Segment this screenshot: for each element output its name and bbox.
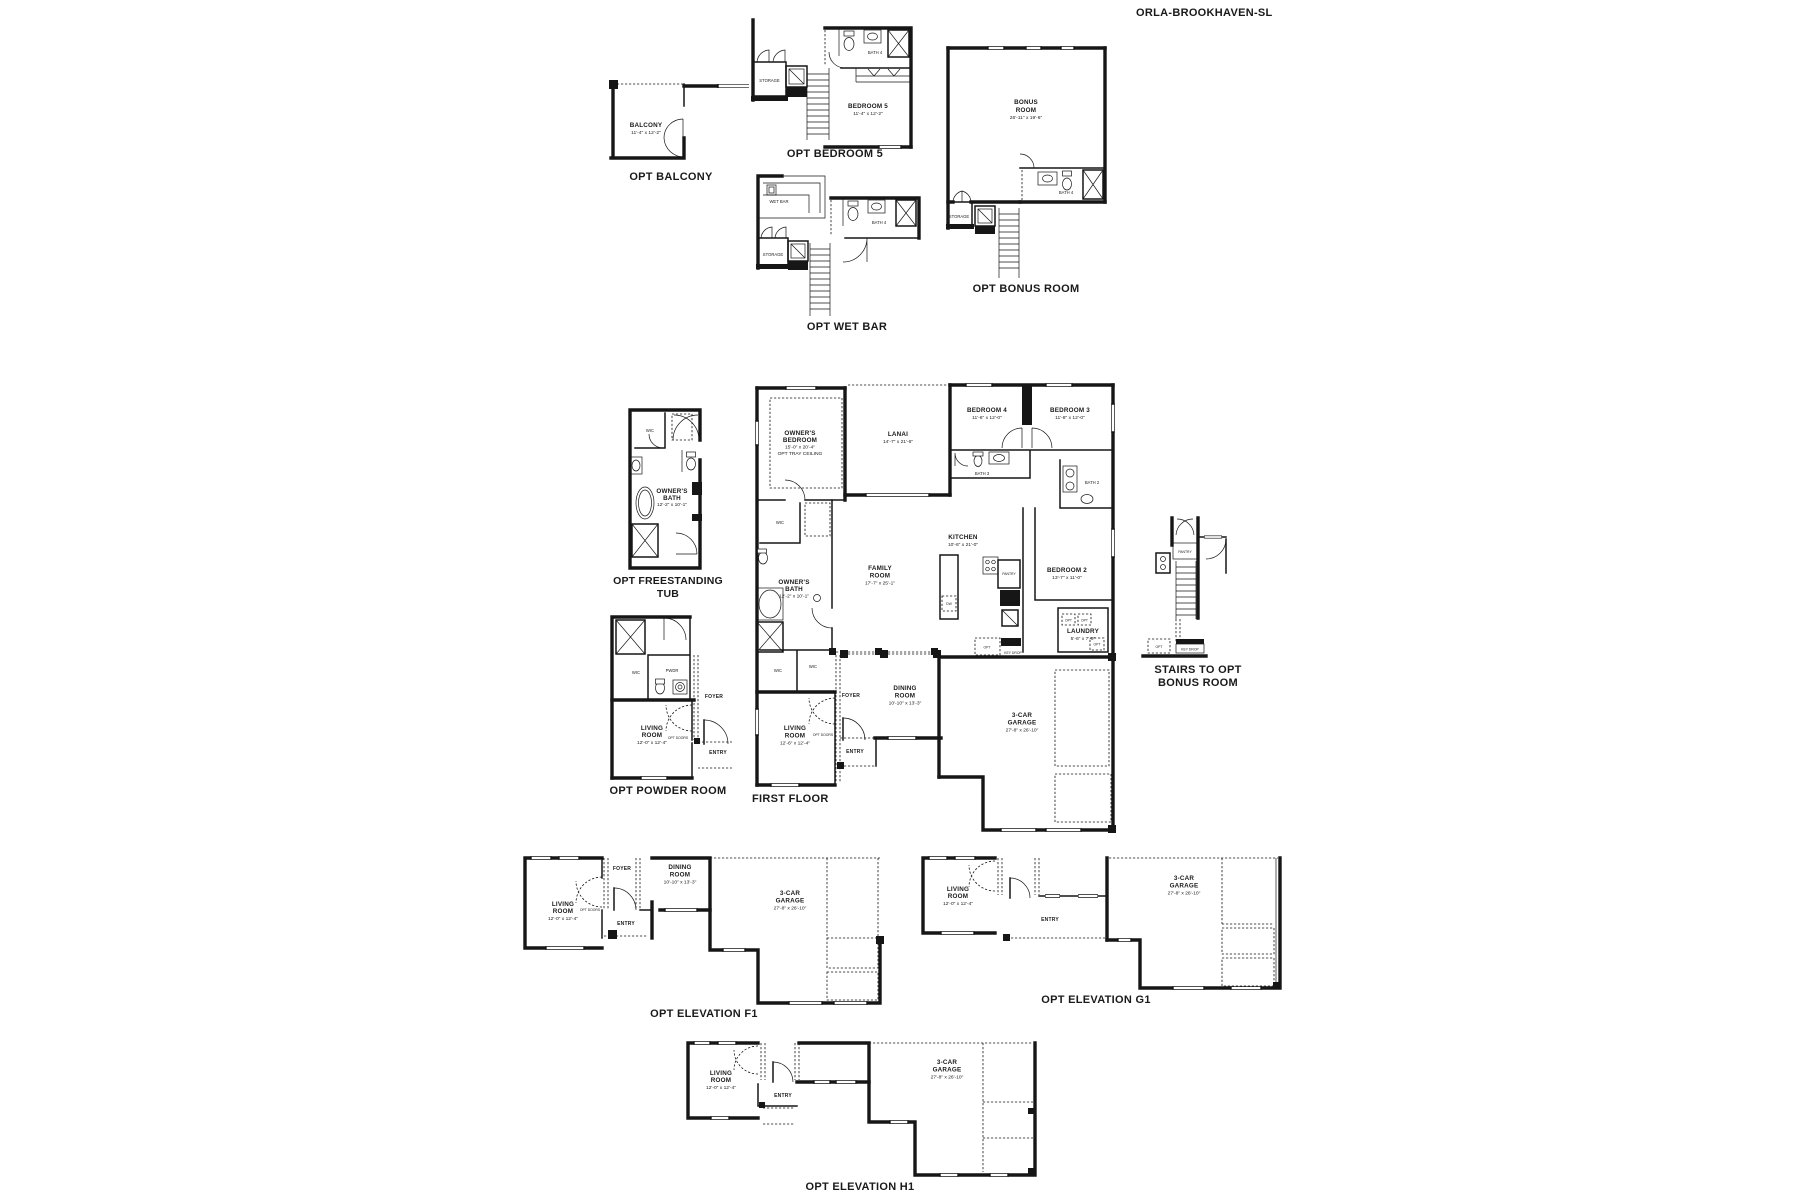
ff-lanai-label: LANAI — [888, 431, 908, 438]
g1-living-dims: 12'-0" x 12'-4" — [943, 901, 973, 907]
ff-bedroom3-label: BEDROOM 3 — [1050, 407, 1090, 414]
elev-f1-walls — [525, 857, 884, 1005]
powder-opt-doors-label: OPT DOORS — [668, 736, 689, 740]
bonus-room-label-1: BONUS — [1014, 99, 1038, 106]
ff-garage-label-1: 3-CAR — [1012, 712, 1032, 719]
ff-owners-bedroom-note: OPT TRAY CEILING — [778, 451, 823, 457]
ff-bedroom3-dims: 11'-8" x 12'-0" — [1055, 415, 1085, 421]
ff-owners-bedroom-label-1: OWNER'S — [784, 430, 815, 437]
elev-h1-caption: OPT ELEVATION H1 — [806, 1181, 915, 1193]
powder-living-label-2: ROOM — [642, 732, 662, 739]
ff-kitchen-label: KITCHEN — [948, 534, 978, 541]
tub-bath-dims: 12'-2" x 10'-1" — [657, 502, 687, 508]
h1-entry-label: ENTRY — [774, 1093, 792, 1099]
bonus-bath-label: BATH 4 — [1059, 190, 1074, 195]
f1-garage-dims: 27'-8" x 26'-10" — [774, 906, 807, 912]
f1-dining-label-1: DINING — [668, 864, 691, 871]
stairs-caption-2: BONUS ROOM — [1158, 677, 1238, 689]
h1-garage-dims: 27'-8" x 26'-10" — [931, 1075, 964, 1081]
h1-living-dims: 12'-0" x 12'-4" — [706, 1085, 736, 1091]
ff-laundry-label: LAUNDRY — [1067, 628, 1100, 635]
powder-wic-label: WIC — [632, 670, 640, 675]
elev-h1-walls — [688, 1042, 1036, 1177]
section-opt-elevation-g1: LIVING ROOM 12'-0" x 12'-4" ENTRY 3-CAR … — [918, 852, 1292, 1012]
ff-bath3-label: BATH 3 — [975, 471, 990, 476]
g1-living-label-1: LIVING — [947, 886, 969, 893]
f1-dining-dims: 10'-10" x 13'-3" — [664, 880, 697, 886]
bedroom5-room-label: BEDROOM 5 — [848, 103, 888, 110]
section-opt-bonus-room: BONUS ROOM 26'-11" x 19'-6" STORAGE BATH… — [945, 42, 1127, 304]
ff-laundry-dims: 5'-6" x 7'-9" — [1071, 636, 1096, 642]
wetbar-label: WET BAR — [769, 199, 788, 204]
g1-living-label-2: ROOM — [948, 893, 968, 900]
h1-living-label-2: ROOM — [711, 1077, 731, 1084]
elev-g1-walls — [923, 857, 1281, 990]
g1-entry-label: ENTRY — [1041, 917, 1059, 923]
section-opt-balcony: BALCONY 11'-4" x 12'-2" OPT BALCONY — [605, 70, 755, 188]
bonus-storage-label: STORAGE — [949, 214, 970, 219]
wetbar-caption: OPT WET BAR — [807, 321, 887, 333]
balcony-caption: OPT BALCONY — [629, 171, 713, 183]
balcony-room-dims: 11'-4" x 12'-2" — [631, 130, 661, 136]
ff-bedroom2-label: BEDROOM 2 — [1047, 567, 1087, 574]
powder-pwdr-label: PWDR — [666, 668, 679, 673]
ff-bedroom4-dims: 11'-6" x 12'-0" — [972, 415, 1002, 421]
section-opt-elevation-f1: LIVING ROOM 12'-0" x 12'-4" OPT DOORS FO… — [518, 850, 900, 1025]
ff-living-dims: 12'-6" x 12'-4" — [780, 741, 810, 747]
ff-bedroom4-label: BEDROOM 4 — [967, 407, 1007, 414]
balcony-room-label: BALCONY — [630, 122, 663, 129]
tub-bath-label-1: OWNER'S — [656, 488, 687, 495]
bedroom5-bath-label: BATH 4 — [868, 50, 883, 55]
stairs-caption-1: STAIRS TO OPT — [1154, 664, 1241, 676]
ff-living-label-2: ROOM — [785, 733, 805, 740]
elev-g1-caption: OPT ELEVATION G1 — [1041, 994, 1151, 1006]
g1-garage-label-1: 3-CAR — [1174, 875, 1194, 882]
powder-caption: OPT POWDER ROOM — [610, 785, 727, 797]
elev-f1-caption: OPT ELEVATION F1 — [650, 1008, 758, 1020]
ff-family-dims: 17'-7" x 25'-1" — [865, 581, 895, 587]
stairs-opt-label: OPT — [1156, 645, 1163, 649]
ff-dw-label: DW — [946, 602, 952, 606]
f1-garage-label-1: 3-CAR — [780, 890, 800, 897]
tub-caption-1: OPT FREESTANDING — [613, 575, 723, 587]
stairs-pantry-label: PANTRY — [1178, 550, 1192, 554]
ff-wic-label-3: WIC — [809, 664, 817, 669]
ff-bedroom2-dims: 13'-7" x 11'-0" — [1052, 575, 1082, 581]
stairs-walls — [1143, 518, 1226, 656]
bedroom5-walls — [751, 20, 911, 148]
ff-wic-label-1: WIC — [776, 520, 784, 525]
f1-opt-doors-label: OPT DOORS — [580, 908, 601, 912]
bonus-caption: OPT BONUS ROOM — [973, 283, 1080, 295]
ff-opt-doors-label: OPT DOORS — [813, 733, 834, 737]
powder-foyer-label: FOYER — [705, 694, 723, 700]
section-opt-wetbar: WET BAR STORAGE BATH 4 OPT WET BAR — [752, 170, 924, 338]
ff-laundry-opt-1: OPT — [1065, 619, 1072, 623]
g1-garage-dims: 27'-8" x 26'-10" — [1168, 891, 1201, 897]
tub-caption-2: TUB — [657, 588, 679, 600]
tub-bath-label-2: BATH — [663, 495, 681, 502]
bonus-room-label-2: ROOM — [1016, 107, 1036, 114]
stairs-key-drop-label: KEY DROP — [1181, 648, 1199, 652]
g1-garage-label-2: GARAGE — [1170, 883, 1199, 890]
ff-laundry-opt-2: OPT — [1081, 619, 1088, 623]
bedroom5-storage-label: STORAGE — [759, 78, 780, 83]
f1-living-label-2: ROOM — [553, 908, 573, 915]
f1-garage-label-2: GARAGE — [776, 898, 805, 905]
wetbar-walls — [756, 176, 919, 316]
ff-kitchen-dims: 10'-6" x 21'-0" — [948, 542, 978, 548]
powder-living-dims: 12'-0" x 12'-4" — [637, 740, 667, 746]
bedroom5-caption: OPT BEDROOM 5 — [787, 148, 883, 160]
ff-owners-bedroom-label-2: BEDROOM — [783, 437, 817, 444]
ff-dining-label-2: ROOM — [895, 693, 915, 700]
ff-owners-bath-label-1: OWNER'S — [778, 579, 809, 586]
ff-pantry-label: PANTRY — [1002, 572, 1016, 576]
first-floor-caption: FIRST FLOOR — [752, 793, 829, 805]
ff-foyer-label: FOYER — [842, 693, 860, 699]
ff-key-drop-label: KEY DROP — [1004, 651, 1022, 655]
ff-owners-bedroom-dims: 15'-0" x 20'-4" — [785, 445, 815, 451]
wetbar-storage-label: STORAGE — [763, 252, 784, 257]
section-opt-bedroom5: STORAGE BATH 4 BEDROOM 5 11'-4" x 12'-2"… — [748, 16, 916, 166]
h1-garage-label-2: GARAGE — [933, 1067, 962, 1074]
section-opt-powder-room: WIC PWDR FOYER LIVING ROOM 12'-0" x 12'-… — [602, 608, 754, 800]
wetbar-bath-label: BATH 4 — [872, 220, 887, 225]
ff-owners-bath-dims: 12'-2" x 10'-1" — [779, 594, 809, 600]
tub-wic-label: WIC — [646, 428, 654, 433]
f1-foyer-label: FOYER — [613, 866, 631, 872]
f1-entry-label: ENTRY — [617, 921, 635, 927]
ff-family-label-1: FAMILY — [868, 565, 892, 572]
ff-dining-dims: 10'-10" x 13'-3" — [889, 701, 922, 707]
bonus-room-dims: 26'-11" x 19'-6" — [1010, 115, 1043, 121]
ff-garage-label-2: GARAGE — [1008, 720, 1037, 727]
ff-opt-label: OPT — [984, 646, 991, 650]
floorplan-sheet: ORLA-BROOKHAVEN-SL BALCONY 11'-4" x 12'-… — [0, 0, 1800, 1200]
ff-lanai-dims: 14'-7" x 21'-6" — [883, 439, 913, 445]
ff-garage-dims: 27'-8" x 26'-10" — [1006, 728, 1039, 734]
f1-living-label-1: LIVING — [552, 901, 574, 908]
ff-entry-label: ENTRY — [846, 749, 864, 755]
bedroom5-room-dims: 11'-4" x 12'-2" — [853, 111, 883, 117]
section-first-floor: OWNER'S BEDROOM 15'-0" x 20'-4" OPT TRAY… — [745, 378, 1143, 846]
section-opt-elevation-h1: LIVING ROOM 12'-0" x 12'-4" ENTRY 3-CAR … — [683, 1038, 1061, 1200]
powder-entry-label: ENTRY — [709, 750, 727, 756]
f1-living-dims: 12'-0" x 12'-4" — [548, 916, 578, 922]
ff-family-label-2: ROOM — [870, 573, 890, 580]
section-opt-freestanding-tub: WIC OWNER'S BATH 12'-2" x 10'-1" OPT FRE… — [612, 402, 730, 602]
h1-garage-label-1: 3-CAR — [937, 1059, 957, 1066]
ff-living-label-1: LIVING — [784, 725, 806, 732]
section-stairs-to-bonus: PANTRY OPT KEY DROP STAIRS TO OPT BONUS … — [1140, 515, 1278, 695]
ff-laundry-opt-3: OPT — [1094, 643, 1101, 647]
ff-dining-label-1: DINING — [893, 685, 916, 692]
f1-dining-label-2: ROOM — [670, 872, 690, 879]
powder-living-label-1: LIVING — [641, 725, 663, 732]
first-floor-walls — [756, 384, 1116, 833]
ff-owners-bath-label-2: BATH — [785, 586, 803, 593]
balcony-walls — [609, 80, 749, 158]
ff-bath2-label: BATH 2 — [1085, 480, 1100, 485]
plan-title: ORLA-BROOKHAVEN-SL — [1136, 7, 1273, 19]
h1-living-label-1: LIVING — [710, 1070, 732, 1077]
ff-wic-label-2: WIC — [774, 668, 782, 673]
bonus-walls — [946, 47, 1105, 278]
